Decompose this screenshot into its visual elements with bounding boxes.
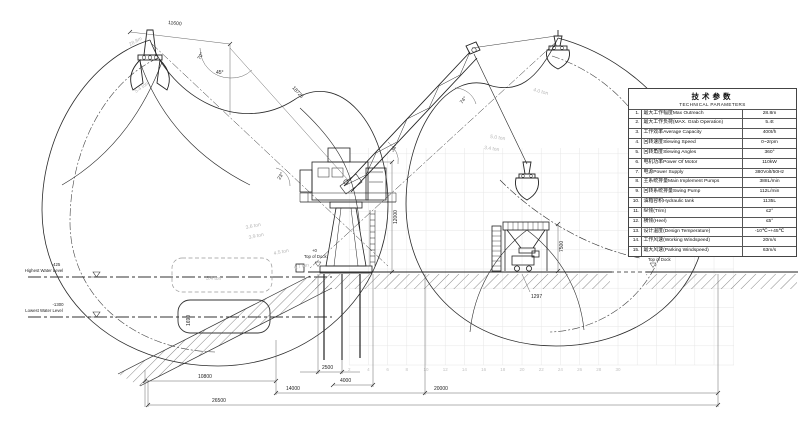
capacity-label: 5.4 ton bbox=[134, 81, 150, 95]
param-value: -10℃~+45℃ bbox=[743, 228, 796, 237]
param-name: 油箱容积Hydraulic tank bbox=[642, 198, 743, 207]
param-number: 9. bbox=[629, 188, 642, 197]
param-value: 360° bbox=[743, 149, 796, 158]
lowest-water-label: Lowest Water Level bbox=[25, 308, 63, 313]
param-name: 工作风速(Working Windspeed) bbox=[642, 237, 743, 246]
param-name: 回转速度Slewing Speed bbox=[642, 139, 743, 148]
drawing-canvas: 24681012141618202224262830 -425 Highest … bbox=[0, 0, 800, 425]
param-name: 横倾(Heel) bbox=[642, 218, 743, 227]
param-name: 工作效率Average Capacity bbox=[642, 129, 743, 138]
dim-7500: 7500 bbox=[559, 241, 565, 252]
capacity-label: 3.6 ton bbox=[245, 222, 261, 231]
dock-and-ground bbox=[118, 272, 798, 386]
param-name: 最大风速(Parking Windspeed) bbox=[642, 247, 743, 256]
bank-slope-line bbox=[118, 276, 310, 374]
grid-number: 4 bbox=[367, 367, 370, 372]
param-name: 电源Power Supply bbox=[642, 169, 743, 178]
dim-1297: 1297 bbox=[531, 294, 542, 300]
grid-number: 12 bbox=[443, 367, 449, 372]
grid-number: 22 bbox=[539, 367, 545, 372]
dim-2500: 2500 bbox=[322, 365, 333, 371]
capacity-label: 5.0 ton bbox=[490, 134, 506, 142]
param-row: 4.回转速度Slewing Speed0~2rpm bbox=[629, 138, 796, 148]
param-row: 14.工作风速(Working Windspeed)20m/s bbox=[629, 236, 796, 246]
bank-slope-hatching bbox=[118, 276, 332, 386]
capacity-labels: 28.8m 5.4 ton 3.6 ton 3.9 ton 4.5 ton 4.… bbox=[128, 36, 549, 282]
param-number: 13. bbox=[629, 228, 642, 237]
table-title-cn: 技术参数 bbox=[629, 89, 796, 102]
hopper-chute bbox=[519, 248, 535, 253]
angle-70: 70° bbox=[197, 51, 206, 61]
grid-number: 20 bbox=[519, 367, 525, 372]
barge-depth-dim: 1690 bbox=[186, 315, 192, 326]
param-row: 15.最大风速(Parking Windspeed)63m/s bbox=[629, 246, 796, 256]
grab-hanging bbox=[515, 162, 538, 200]
dim-12000: 12000 bbox=[393, 210, 399, 224]
param-value: 388L/min bbox=[743, 178, 796, 187]
dim-4000: 4000 bbox=[340, 378, 351, 384]
param-row: 2.最大工作负荷(MAX. Grab Operation)5.4t bbox=[629, 118, 796, 128]
param-name: 最大工作幅度Max Outreach bbox=[642, 110, 743, 119]
param-number: 7. bbox=[629, 169, 642, 178]
dim-11600: 11600 bbox=[168, 20, 182, 27]
capacity-label: 4.5 ton bbox=[273, 248, 289, 257]
capacity-label: 3.9 ton bbox=[248, 232, 264, 241]
capacity-label: 3.4 ton bbox=[484, 145, 500, 153]
dock-left-elevation: +0 bbox=[312, 248, 318, 253]
grid-number: 16 bbox=[481, 367, 487, 372]
tip-reference-line bbox=[472, 36, 556, 48]
param-row: 3.工作效率Average Capacity400t/h bbox=[629, 128, 796, 138]
param-number: 11. bbox=[629, 208, 642, 217]
param-row: 12.横倾(Heel)≤5° bbox=[629, 217, 796, 227]
grid-number: 28 bbox=[596, 367, 602, 372]
capacity-label: 28.8m bbox=[128, 36, 143, 48]
grab-shell bbox=[515, 178, 538, 200]
highest-water-elevation: -425 bbox=[52, 262, 61, 267]
dock-hatching bbox=[312, 274, 610, 289]
param-number: 2. bbox=[629, 119, 642, 128]
param-value: ≤2° bbox=[743, 208, 796, 217]
boom-tip-sheave bbox=[472, 48, 476, 52]
param-number: 14. bbox=[629, 237, 642, 246]
dock-right-label: Top of Dock bbox=[648, 257, 672, 262]
water-level-symbol bbox=[90, 272, 103, 277]
param-number: 4. bbox=[629, 139, 642, 148]
dim-14000: 14000 bbox=[286, 386, 300, 392]
dock-hatching bbox=[646, 274, 797, 289]
param-row: 7.电源Power Supply380Volt/50Hz bbox=[629, 168, 796, 178]
capacity-label: 4.7 ton bbox=[293, 262, 309, 271]
param-row: 13.设计温度(Design Temperature)-10℃~+45℃ bbox=[629, 227, 796, 237]
param-row: 5.回转角度Slewing Angles360° bbox=[629, 148, 796, 158]
param-row: 6.电机功率Power Of Motor110kW bbox=[629, 158, 796, 168]
param-name: 回转角度Slewing Angles bbox=[642, 149, 743, 158]
param-name: 设计温度(Design Temperature) bbox=[642, 228, 743, 237]
hopper-and-truck bbox=[492, 222, 549, 271]
capacity-label: 5.4 ton bbox=[206, 276, 222, 282]
hopper-grizzly bbox=[503, 222, 549, 230]
water-level-symbol bbox=[90, 312, 103, 317]
angle-45: 45° bbox=[216, 70, 224, 76]
access-ladder bbox=[370, 210, 375, 266]
param-value: 110kW bbox=[743, 159, 796, 168]
param-name: 主系统排量Main Implement Pumps bbox=[642, 178, 743, 187]
param-value: 5.4t bbox=[743, 119, 796, 128]
hopper-ladder-tower bbox=[492, 226, 501, 271]
param-number: 12. bbox=[629, 218, 642, 227]
param-name: 最大工作负荷(MAX. Grab Operation) bbox=[642, 119, 743, 128]
hopper-funnel bbox=[507, 230, 521, 248]
param-number: 5. bbox=[629, 149, 642, 158]
grid-number: 18 bbox=[500, 367, 506, 372]
capacity-grid-numbers: 24681012141618202224262830 bbox=[348, 367, 621, 372]
angle-23: 23° bbox=[277, 171, 286, 181]
pedestal bbox=[326, 208, 366, 266]
crane-boom bbox=[340, 36, 556, 194]
house-gantry bbox=[328, 148, 350, 162]
param-name: 回转系统排量Swing Pump bbox=[642, 188, 743, 197]
param-value: 28.8m bbox=[743, 110, 796, 119]
grid-number: 10 bbox=[423, 367, 429, 372]
param-row: 10.油箱容积Hydraulic tank1135L bbox=[629, 197, 796, 207]
grid-number: 24 bbox=[558, 367, 564, 372]
param-number: 15. bbox=[629, 247, 642, 256]
grid-number: 14 bbox=[462, 367, 468, 372]
param-value: 0~2rpm bbox=[743, 139, 796, 148]
dim-20000: 20000 bbox=[434, 386, 448, 392]
param-row: 8.主系统排量Main Implement Pumps388L/min bbox=[629, 177, 796, 187]
lowest-water-elevation: -1300 bbox=[53, 302, 65, 307]
param-value: 380Volt/50Hz bbox=[743, 169, 796, 178]
parameters-table-body: 1.最大工作幅度Max Outreach28.8m2.最大工作负荷(MAX. G… bbox=[629, 109, 796, 257]
param-value: 112L/min bbox=[743, 188, 796, 197]
param-number: 6. bbox=[629, 159, 642, 168]
angle-74: 74° bbox=[459, 96, 468, 106]
technical-parameters-table: 技术参数 TECHNICAL PARAMETERS 1.最大工作幅度Max Ou… bbox=[628, 88, 797, 257]
grab-top-right bbox=[546, 30, 569, 69]
truck-body bbox=[512, 256, 534, 265]
param-row: 11.纵倾(Trim)≤2° bbox=[629, 207, 796, 217]
hopper-funnel bbox=[533, 230, 545, 248]
param-number: 8. bbox=[629, 178, 642, 187]
ship-hold-outline bbox=[172, 258, 272, 292]
truck-wheel bbox=[514, 266, 519, 271]
grid-number: 8 bbox=[406, 367, 409, 372]
param-row: 1.最大工作幅度Max Outreach28.8m bbox=[629, 109, 796, 119]
dim-26500: 26500 bbox=[212, 398, 226, 404]
param-value: 400t/h bbox=[743, 129, 796, 138]
param-number: 10. bbox=[629, 198, 642, 207]
bank-slope-line bbox=[140, 288, 332, 386]
param-value: 63m/s bbox=[743, 247, 796, 256]
grid-number: 30 bbox=[615, 367, 621, 372]
grid-number: 6 bbox=[386, 367, 389, 372]
param-name: 电机功率Power Of Motor bbox=[642, 159, 743, 168]
param-value: 1135L bbox=[743, 198, 796, 207]
dock-left-label: Top of Dock bbox=[304, 254, 328, 259]
param-row: 9.回转系统排量Swing Pump112L/min bbox=[629, 187, 796, 197]
hoist-rope bbox=[474, 54, 527, 164]
capacity-label: 4.0 ton bbox=[532, 87, 549, 97]
grid-number: 26 bbox=[577, 367, 583, 372]
param-value: ≤5° bbox=[743, 218, 796, 227]
truck-wheel bbox=[526, 266, 531, 271]
grid-number: 2 bbox=[348, 367, 351, 372]
param-number: 1. bbox=[629, 110, 642, 119]
param-name: 纵倾(Trim) bbox=[642, 208, 743, 217]
param-number: 3. bbox=[629, 129, 642, 138]
machinery-house bbox=[312, 162, 368, 200]
highest-water-label: Highest Water Level bbox=[25, 268, 64, 273]
param-value: 20m/s bbox=[743, 237, 796, 246]
dim-10800: 10800 bbox=[198, 374, 212, 380]
